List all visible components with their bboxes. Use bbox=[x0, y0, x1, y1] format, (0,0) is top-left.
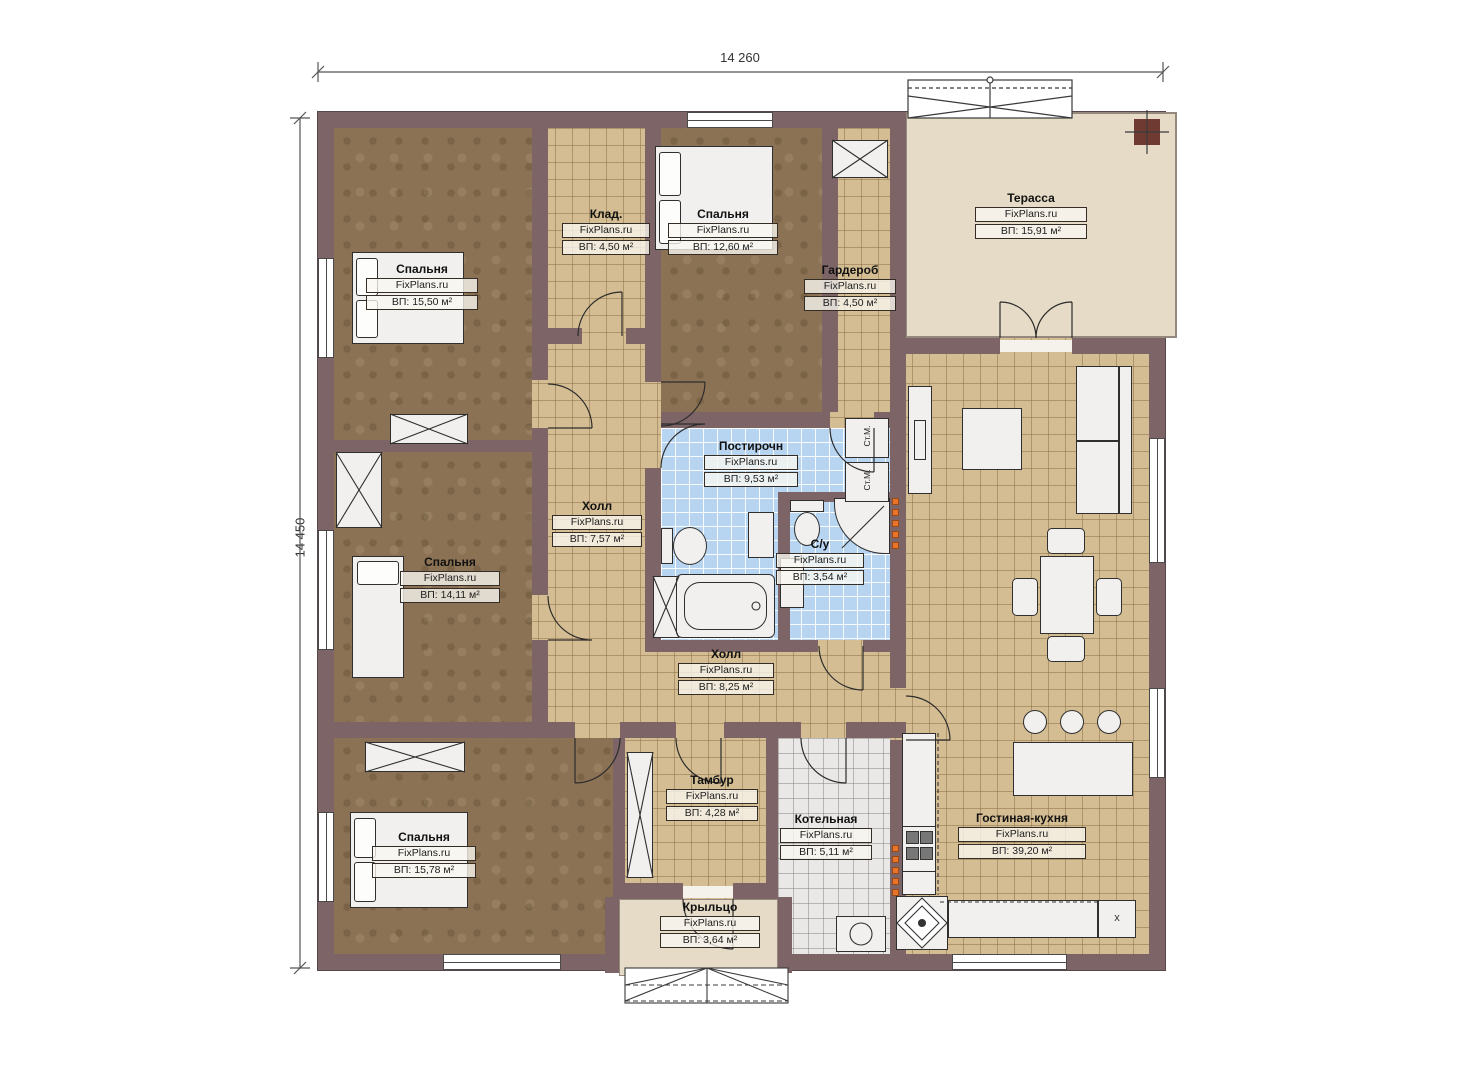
wall-segment bbox=[846, 722, 906, 738]
wall-segment bbox=[863, 640, 890, 652]
window bbox=[318, 812, 334, 902]
sofa-back-line bbox=[1118, 366, 1120, 514]
room-name: Спальня bbox=[668, 208, 778, 221]
toilet-tank bbox=[661, 528, 673, 564]
wall-segment bbox=[890, 112, 906, 354]
bathtub-inner bbox=[684, 582, 767, 630]
stove-burner bbox=[906, 847, 919, 860]
washing-machine-label: Ст.М. bbox=[862, 414, 872, 458]
window bbox=[443, 954, 561, 970]
room-area: ВП: 3,54 м² bbox=[776, 570, 864, 585]
room-label-bedroom-top-middle: Спальня FixPlans.ru ВП: 12,60 м² bbox=[668, 208, 778, 255]
entry-door-threshold bbox=[683, 886, 733, 898]
room-label-bedroom-top-left: Спальня FixPlans.ru ВП: 15,50 м² bbox=[366, 263, 478, 310]
dimension-left-label: 14 450 bbox=[293, 488, 308, 588]
room-watermark: FixPlans.ru bbox=[562, 223, 650, 238]
coffee-table bbox=[962, 408, 1022, 470]
room-label-living-kitchen: Гостиная-кухня FixPlans.ru ВП: 39,20 м² bbox=[958, 812, 1086, 859]
room-label-porch: Крыльцо FixPlans.ru ВП: 3,64 м² bbox=[660, 901, 760, 948]
wardrobe-cabinet bbox=[336, 452, 382, 528]
bath-cabinet bbox=[748, 512, 774, 558]
room-watermark: FixPlans.ru bbox=[366, 278, 478, 293]
wall-segment bbox=[548, 328, 582, 344]
room-name: С/у bbox=[776, 538, 864, 551]
wall-segment bbox=[733, 883, 778, 899]
room-watermark: FixPlans.ru bbox=[678, 663, 774, 678]
room-watermark: FixPlans.ru bbox=[660, 916, 760, 931]
wall-segment bbox=[661, 412, 830, 428]
bar-stool bbox=[1097, 710, 1121, 734]
kitchen-island bbox=[1013, 742, 1133, 796]
radiator-dot bbox=[892, 878, 899, 885]
room-name: Спальня bbox=[366, 263, 478, 276]
window bbox=[1149, 688, 1165, 778]
room-watermark: FixPlans.ru bbox=[372, 846, 476, 861]
sofa-cushion-line bbox=[1076, 440, 1118, 442]
room-name: Котельная bbox=[780, 813, 872, 826]
radiator-dot bbox=[892, 498, 899, 505]
tv-stand-detail bbox=[914, 420, 926, 460]
pillow bbox=[659, 152, 681, 196]
room-label-hall-small: Холл FixPlans.ru ВП: 7,57 м² bbox=[552, 500, 642, 547]
room-area: ВП: 12,60 м² bbox=[668, 240, 778, 255]
wardrobe-cabinet bbox=[627, 752, 653, 878]
dining-table bbox=[1040, 556, 1094, 634]
radiator-dot bbox=[892, 856, 899, 863]
chair bbox=[1012, 578, 1038, 616]
room-area: ВП: 7,57 м² bbox=[552, 532, 642, 547]
chair bbox=[1096, 578, 1122, 616]
radiator-dot bbox=[892, 520, 899, 527]
bar-stool bbox=[1060, 710, 1084, 734]
chair bbox=[1047, 528, 1085, 554]
room-area: ВП: 9,53 м² bbox=[704, 472, 798, 487]
room-area: ВП: 15,91 м² bbox=[975, 224, 1087, 239]
boiler-equipment bbox=[836, 916, 886, 952]
wall-segment bbox=[890, 338, 1000, 354]
terrace-door-threshold bbox=[1000, 340, 1072, 352]
dimension-top-label: 14 260 bbox=[690, 50, 790, 65]
room-watermark: FixPlans.ru bbox=[804, 279, 896, 294]
floor-plan: 14 260 14 450 bbox=[0, 0, 1473, 1080]
room-watermark: FixPlans.ru bbox=[400, 571, 500, 586]
room-name: Крыльцо bbox=[660, 901, 760, 914]
room-name: Гостиная-кухня bbox=[958, 812, 1086, 825]
wall-segment bbox=[1072, 338, 1165, 354]
washing-machine-label: Ст.М. bbox=[862, 458, 872, 502]
chair bbox=[1047, 636, 1085, 662]
stove-burner bbox=[920, 847, 933, 860]
room-name: Спальня bbox=[400, 556, 500, 569]
room-name: Гардероб bbox=[804, 264, 896, 277]
toilet-bowl bbox=[673, 527, 707, 565]
room-area: ВП: 4,28 м² bbox=[666, 806, 758, 821]
wall-segment bbox=[532, 640, 548, 722]
radiator-dot bbox=[892, 867, 899, 874]
room-name: Холл bbox=[678, 648, 774, 661]
window bbox=[318, 258, 334, 358]
wall-segment bbox=[724, 722, 801, 738]
room-area: ВП: 4,50 м² bbox=[804, 296, 896, 311]
porch-wall-stub bbox=[605, 897, 619, 973]
room-name: Клад. bbox=[562, 208, 650, 221]
room-name: Постирочн bbox=[704, 440, 798, 453]
room-label-bathroom: С/у FixPlans.ru ВП: 3,54 м² bbox=[776, 538, 864, 585]
radiator-dot bbox=[892, 845, 899, 852]
radiator-dot bbox=[892, 509, 899, 516]
room-name: Тамбур bbox=[666, 774, 758, 787]
room-area: ВП: 14,11 м² bbox=[400, 588, 500, 603]
room-label-bedroom-middle-left: Спальня FixPlans.ru ВП: 14,11 м² bbox=[400, 556, 500, 603]
radiator-dot bbox=[892, 889, 899, 896]
pillow bbox=[357, 561, 399, 585]
kitchen-counter bbox=[948, 900, 1098, 938]
wall-segment bbox=[613, 738, 625, 899]
room-name: Терасса bbox=[975, 192, 1087, 205]
radiator-dot bbox=[892, 542, 899, 549]
room-label-hall-big: Холл FixPlans.ru ВП: 8,25 м² bbox=[678, 648, 774, 695]
window bbox=[687, 112, 773, 128]
room-label-laundry: Постирочн FixPlans.ru ВП: 9,53 м² bbox=[704, 440, 798, 487]
wall-segment bbox=[613, 883, 683, 899]
window bbox=[952, 954, 1067, 970]
wall-segment bbox=[626, 328, 661, 344]
room-label-terrace: Терасса FixPlans.ru ВП: 15,91 м² bbox=[975, 192, 1087, 239]
bar-stool bbox=[1023, 710, 1047, 734]
wall-segment bbox=[620, 722, 676, 738]
wall-segment bbox=[334, 722, 575, 738]
room-area: ВП: 5,11 м² bbox=[780, 845, 872, 860]
room-area: ВП: 15,50 м² bbox=[366, 295, 478, 310]
wall-segment bbox=[766, 738, 778, 899]
window bbox=[1149, 438, 1165, 563]
wall-segment bbox=[532, 128, 548, 380]
room-watermark: FixPlans.ru bbox=[552, 515, 642, 530]
window bbox=[318, 530, 334, 650]
stove-burner bbox=[920, 831, 933, 844]
terrace-column-marker bbox=[1134, 119, 1160, 145]
room-watermark: FixPlans.ru bbox=[776, 553, 864, 568]
wardrobe-cabinet bbox=[365, 742, 465, 772]
room-watermark: FixPlans.ru bbox=[666, 789, 758, 804]
toilet-tank bbox=[790, 500, 824, 512]
room-label-wardrobe: Гардероб FixPlans.ru ВП: 4,50 м² bbox=[804, 264, 896, 311]
stove-burner bbox=[906, 831, 919, 844]
room-name: Холл bbox=[552, 500, 642, 513]
room-label-boiler-room: Котельная FixPlans.ru ВП: 5,11 м² bbox=[780, 813, 872, 860]
room-watermark: FixPlans.ru bbox=[958, 827, 1086, 842]
room-area: ВП: 3,64 м² bbox=[660, 933, 760, 948]
room-area: ВП: 8,25 м² bbox=[678, 680, 774, 695]
room-area: ВП: 4,50 м² bbox=[562, 240, 650, 255]
corner-sink-cabinet bbox=[896, 896, 948, 950]
wall-segment bbox=[532, 428, 548, 595]
room-label-storage: Клад. FixPlans.ru ВП: 4,50 м² bbox=[562, 208, 650, 255]
wardrobe-cabinet bbox=[832, 140, 888, 178]
radiator-dot bbox=[892, 531, 899, 538]
room-area: ВП: 39,20 м² bbox=[958, 844, 1086, 859]
porch-wall-stub bbox=[778, 897, 792, 973]
wardrobe-cabinet bbox=[390, 414, 468, 444]
room-label-bedroom-bottom-left: Спальня FixPlans.ru ВП: 15,78 м² bbox=[372, 831, 476, 878]
room-watermark: FixPlans.ru bbox=[780, 828, 872, 843]
room-watermark: FixPlans.ru bbox=[975, 207, 1087, 222]
kitchen-unit-x-label: x bbox=[1098, 912, 1136, 924]
room-watermark: FixPlans.ru bbox=[704, 455, 798, 470]
room-watermark: FixPlans.ru bbox=[668, 223, 778, 238]
room-area: ВП: 15,78 м² bbox=[372, 863, 476, 878]
room-name: Спальня bbox=[372, 831, 476, 844]
room-label-vestibule: Тамбур FixPlans.ru ВП: 4,28 м² bbox=[666, 774, 758, 821]
